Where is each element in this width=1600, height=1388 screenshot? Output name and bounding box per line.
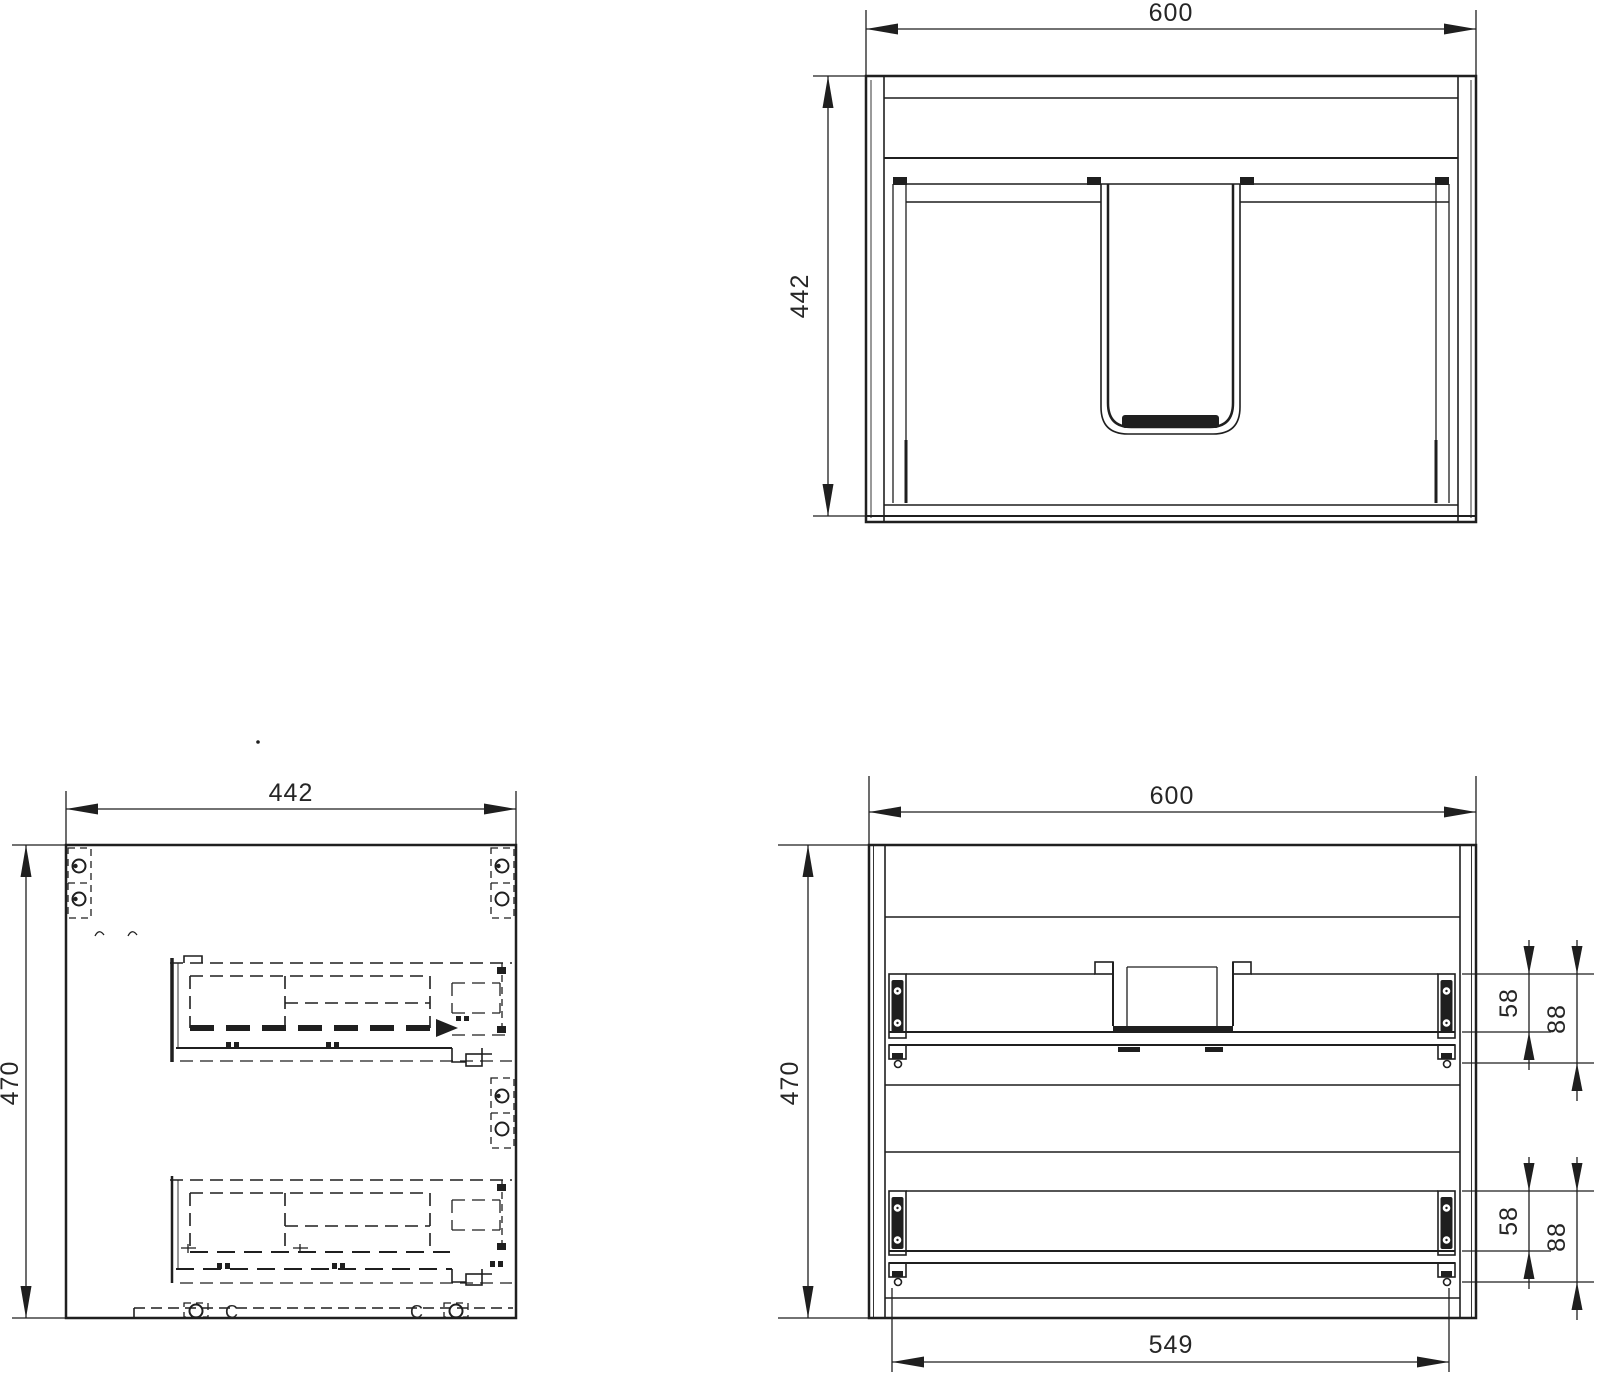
drawer-rail-band xyxy=(889,1251,1455,1263)
clip-letter: C xyxy=(410,1302,424,1322)
clip-mark-icon xyxy=(1240,177,1254,185)
dim-front-height: 470 xyxy=(776,845,869,1318)
dim-arrow-icon xyxy=(1524,1163,1535,1191)
slide-rear-marks xyxy=(456,1016,469,1021)
notch-inner-walls xyxy=(1127,967,1217,1026)
plan-drawer-side-right xyxy=(1436,184,1449,503)
notch-left-tab xyxy=(1095,962,1113,974)
dim-arrow-icon xyxy=(1524,946,1535,974)
stray-dot xyxy=(256,740,260,744)
clip-letter: C xyxy=(225,1302,239,1322)
dim-arrow-icon xyxy=(66,804,98,815)
upper-drawer-front xyxy=(889,962,1455,1068)
dim-arrow-icon xyxy=(1444,807,1476,818)
drawer-slide-right-bracket xyxy=(1438,1191,1455,1286)
slide-clip-marks xyxy=(217,1261,503,1269)
dim-arrow-icon xyxy=(21,1286,32,1318)
dim-arrow-icon xyxy=(803,845,814,877)
drawer-rail-band xyxy=(889,1032,1455,1045)
dim-arrow-icon xyxy=(1572,1282,1583,1310)
slide-rear-bracket-dashed xyxy=(452,1200,500,1230)
dim-arrow-icon xyxy=(484,804,516,815)
slide-rear-bracket-dashed xyxy=(452,983,500,1013)
clip-mark-icon xyxy=(893,177,907,185)
plan-carcass-outline xyxy=(866,76,1476,522)
dim-arrow-icon xyxy=(21,845,32,877)
dim-arrow-icon xyxy=(1444,24,1476,35)
dim-lower-drawer: 58 88 xyxy=(1462,1157,1594,1320)
dim-extension-lines xyxy=(892,1288,1449,1372)
front-carcass-outline xyxy=(869,845,1476,1318)
dim-front-width: 600 xyxy=(869,776,1476,848)
dim-upper-drawer: 58 88 xyxy=(1462,940,1594,1101)
slide-step xyxy=(184,956,202,963)
plan-view xyxy=(866,76,1476,522)
drawing-sheet: 600 442 xyxy=(0,0,1600,1388)
slide-right-hooks xyxy=(452,1269,492,1282)
dim-front-inner-width: 549 xyxy=(892,1288,1449,1372)
dim-arrow-icon xyxy=(823,484,834,516)
sink-cutout-bottom-bar xyxy=(1122,415,1219,428)
dim-arrow-icon xyxy=(803,1286,814,1318)
lower-drawer-slide-side xyxy=(170,1176,512,1285)
side-panel-outline xyxy=(66,845,516,1318)
screw-icon xyxy=(450,1305,463,1318)
dim-value-assembly: 88 xyxy=(1543,1004,1571,1034)
dim-side-height: 470 xyxy=(0,845,66,1318)
dim-value: 600 xyxy=(1150,782,1195,810)
slide-rail-end-arrow-icon xyxy=(436,1019,458,1037)
dim-arrow-icon xyxy=(866,24,898,35)
technical-drawing-canvas: 600 442 xyxy=(0,0,1600,1388)
drawer-slide-right-bracket xyxy=(1438,974,1455,1068)
screw-icon xyxy=(190,1305,203,1318)
dim-value: 442 xyxy=(786,274,814,319)
sink-cutout-outer xyxy=(1101,184,1240,434)
notch-hidden-clips xyxy=(1118,1047,1223,1052)
dim-arrow-icon xyxy=(823,76,834,108)
mounting-bracket-top-left xyxy=(68,848,91,918)
slide-rail-body-dashed xyxy=(190,976,430,1028)
dim-value: 600 xyxy=(1149,0,1194,27)
front-panel-face-lines xyxy=(874,845,1472,1318)
dim-arrow-icon xyxy=(1572,946,1583,974)
front-view xyxy=(869,845,1476,1318)
dim-value-assembly: 88 xyxy=(1543,1222,1571,1252)
notch-right-tab xyxy=(1233,962,1251,974)
side-view: C C xyxy=(66,845,516,1322)
dim-extension-lines xyxy=(813,76,866,516)
dim-value-rail: 58 xyxy=(1495,1206,1523,1236)
mounting-bracket-top-right xyxy=(491,848,514,918)
slide-right-foot xyxy=(466,1054,482,1066)
dim-value: 442 xyxy=(269,779,314,807)
reference-tick-icon xyxy=(95,932,137,936)
dim-value: 470 xyxy=(0,1061,24,1106)
drawer-slide-left-bracket xyxy=(889,1191,906,1286)
clip-mark-icon xyxy=(1087,177,1101,185)
notch-outer-walls xyxy=(1113,962,1233,1026)
sink-cutout-inner xyxy=(1108,184,1233,427)
dim-arrow-icon xyxy=(869,807,901,818)
dim-arrow-icon xyxy=(1524,1251,1535,1279)
dim-arrow-icon xyxy=(1417,1357,1449,1368)
clip-mark-icon xyxy=(1435,177,1449,185)
slide-right-hooks xyxy=(452,1048,492,1062)
mounting-bracket-mid-right xyxy=(491,1078,514,1148)
dim-plan-depth: 442 xyxy=(786,76,866,516)
upper-drawer-slide-side xyxy=(170,956,512,1066)
plan-drawer-side-left xyxy=(893,184,906,503)
drawer-slide-left-bracket xyxy=(889,974,906,1068)
lower-drawer-front xyxy=(889,1191,1455,1286)
dim-arrow-icon xyxy=(1572,1063,1583,1091)
dim-side-depth: 442 xyxy=(66,779,516,848)
dim-arrow-icon xyxy=(1572,1163,1583,1191)
dim-plan-width: 600 xyxy=(866,0,1476,84)
dim-value: 549 xyxy=(1149,1331,1194,1359)
dim-arrow-icon xyxy=(892,1357,924,1368)
slide-rail-body-dashed xyxy=(190,1193,430,1252)
drain-notch xyxy=(1095,962,1251,1052)
dim-value-rail: 58 xyxy=(1495,988,1523,1018)
dim-value: 470 xyxy=(776,1061,804,1106)
dim-arrow-icon xyxy=(1524,1032,1535,1060)
